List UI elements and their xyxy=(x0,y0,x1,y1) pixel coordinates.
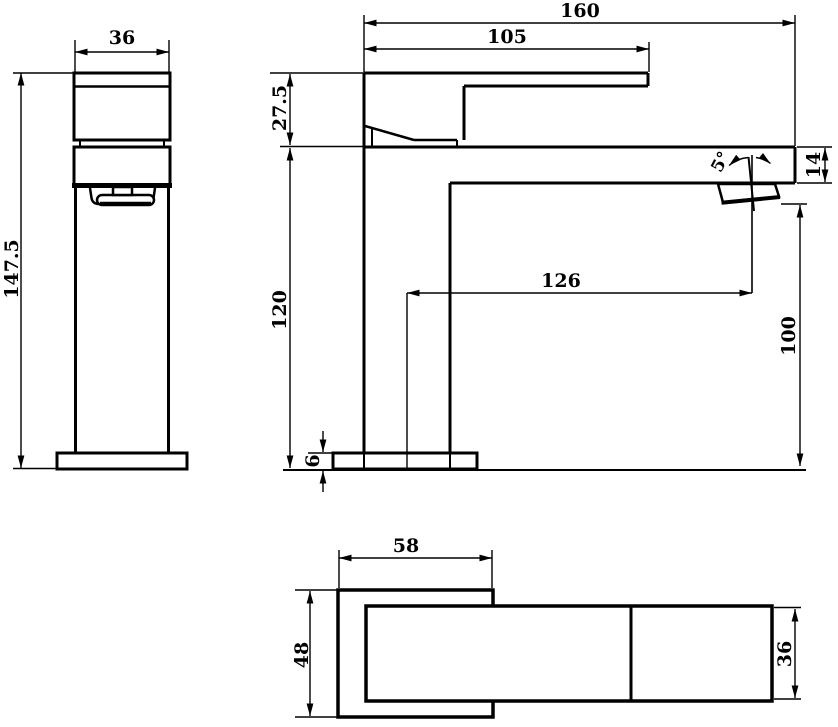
side-base-plate xyxy=(57,453,187,469)
front-aerator xyxy=(718,184,780,203)
side-body-block xyxy=(74,147,170,185)
dim-label-body-height: 120 xyxy=(269,290,291,330)
dim-label-base-depth: 48 xyxy=(291,642,313,668)
dim-label-handle-reach: 105 xyxy=(487,26,527,48)
side-aerator xyxy=(90,187,155,205)
side-view xyxy=(57,73,187,469)
plan-body-footprint xyxy=(366,606,772,701)
dim-label-plan-body-width: 36 xyxy=(774,641,796,667)
dim-label-outlet-angle: 5° xyxy=(707,148,734,175)
dim-label-spout-section: 14 xyxy=(803,152,825,178)
dim-label-side-height: 147.5 xyxy=(1,239,23,299)
front-base-plate xyxy=(333,453,477,469)
side-view-dimensions xyxy=(13,40,169,469)
dim-label-side-width: 36 xyxy=(109,27,135,49)
technical-drawing-canvas: 36 147.5 xyxy=(0,0,838,727)
dim-label-base-thickness: 6 xyxy=(302,454,324,467)
dim-label-base-length: 58 xyxy=(393,535,419,557)
dim-label-spout-reach: 126 xyxy=(541,270,581,292)
dim-label-total-length: 160 xyxy=(560,0,600,22)
dim-label-outlet-clearance: 100 xyxy=(778,316,800,356)
dim-label-handle-height: 27.5 xyxy=(269,85,291,131)
technical-drawing-page: 36 147.5 xyxy=(0,0,838,727)
plan-view xyxy=(338,590,772,717)
side-handle-block xyxy=(74,73,170,140)
